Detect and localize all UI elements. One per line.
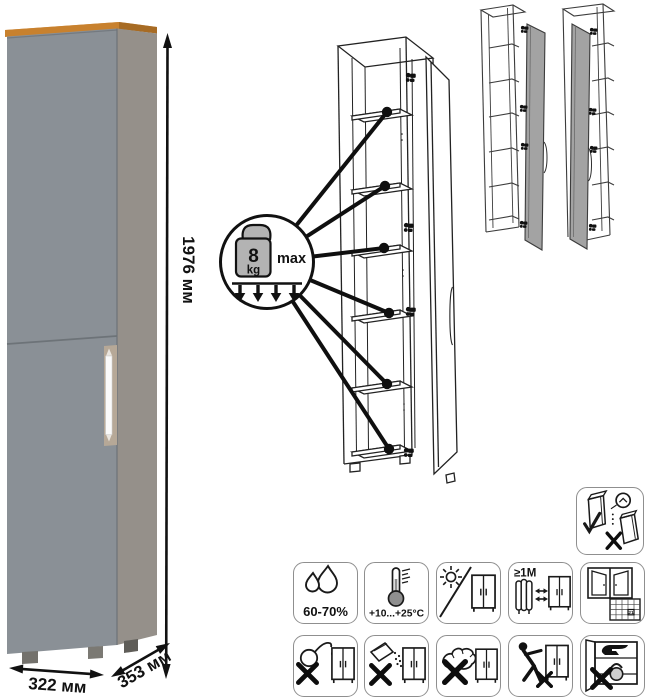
wall-anchor-warning-art bbox=[579, 490, 641, 552]
keep-1m-from-heaters-icon: ≥1М bbox=[508, 562, 573, 624]
variant-b-door bbox=[570, 24, 590, 249]
shelf-load-callout: 8 kg max bbox=[221, 216, 314, 309]
variant-a-handle bbox=[544, 142, 547, 173]
humidity-icon: 60-70% bbox=[293, 562, 358, 624]
wall-anchor-warning-icon bbox=[576, 487, 644, 555]
cabinet-photo bbox=[5, 22, 157, 664]
cabinet-side-panel bbox=[117, 29, 157, 646]
distance-label: ≥1М bbox=[514, 568, 536, 580]
x-mark bbox=[607, 533, 620, 548]
foot-left bbox=[22, 651, 38, 664]
no-abrasive-powder-icon bbox=[364, 635, 429, 697]
wardrobe-icon bbox=[472, 575, 495, 612]
calendar-day: 21 bbox=[628, 610, 634, 616]
height-dimension: 1976 мм bbox=[162, 33, 198, 679]
foot-side bbox=[124, 639, 138, 653]
open-window-icon bbox=[588, 568, 632, 598]
height-arrowhead-top bbox=[163, 33, 172, 48]
sun-icon bbox=[440, 566, 462, 588]
max-label: max bbox=[277, 251, 306, 267]
calendar-icon: 21 bbox=[610, 599, 640, 620]
heat-ticks bbox=[402, 569, 410, 583]
wardrobe-icon bbox=[549, 577, 570, 611]
wardrobe-icon bbox=[403, 648, 425, 683]
powder-dots bbox=[394, 652, 402, 667]
radiator-icon bbox=[516, 580, 532, 615]
height-dimension-label: 1976 мм bbox=[179, 236, 198, 304]
no-wet-cleaning-icon bbox=[293, 635, 358, 697]
no-direct-sunlight-icon bbox=[436, 562, 501, 624]
temperature-label: +10...+25°C bbox=[369, 609, 425, 620]
water-drop-small-icon bbox=[306, 573, 319, 592]
weight-unit: kg bbox=[247, 265, 260, 277]
temperature-icon: +10...+25°C bbox=[364, 562, 429, 624]
variant-b-shelves bbox=[592, 43, 614, 220]
width-dimension-label: 322 мм bbox=[28, 674, 87, 697]
width-arrowhead-left bbox=[9, 665, 23, 674]
x-mark bbox=[371, 665, 389, 683]
no-abrasive-scrubbing-icon bbox=[436, 635, 501, 697]
thermometer-bulb bbox=[389, 591, 404, 606]
distance-arrows bbox=[535, 588, 548, 601]
x-mark bbox=[298, 664, 316, 682]
width-arrowhead-right bbox=[90, 670, 104, 679]
width-dimension: 322 мм bbox=[9, 665, 104, 698]
open-cabinet-diagram bbox=[338, 37, 457, 483]
diagram-open-door bbox=[426, 57, 457, 483]
variant-door-right bbox=[481, 5, 547, 250]
checkmark bbox=[585, 513, 600, 531]
variant-door-left bbox=[563, 4, 614, 249]
tilted-cabinet bbox=[620, 514, 638, 543]
humidity-label: 60-70% bbox=[303, 604, 348, 619]
magnifier-icon bbox=[616, 493, 630, 507]
variant-b-handle bbox=[589, 148, 592, 181]
wardrobe-icon bbox=[332, 648, 354, 683]
variant-a-door bbox=[525, 24, 545, 250]
x-mark bbox=[445, 662, 466, 683]
pointer-dots bbox=[379, 107, 394, 454]
ventilation-calendar-icon: 21 bbox=[580, 562, 645, 624]
foot-right bbox=[88, 646, 103, 659]
water-drop-icon bbox=[318, 566, 337, 593]
cabinet-front-door bbox=[7, 29, 117, 655]
no-heavy-objects-icon bbox=[580, 635, 645, 697]
no-dragging-icon bbox=[508, 635, 573, 697]
wardrobe-icon bbox=[476, 649, 497, 683]
anvil-icon bbox=[602, 645, 628, 655]
product-sheet: 1976 мм 322 мм 353 мм bbox=[0, 0, 648, 700]
door-handle bbox=[106, 356, 112, 435]
powder-box-icon bbox=[371, 643, 393, 661]
depth-dimension: 353 мм bbox=[111, 643, 174, 692]
dotted-line bbox=[612, 513, 614, 524]
